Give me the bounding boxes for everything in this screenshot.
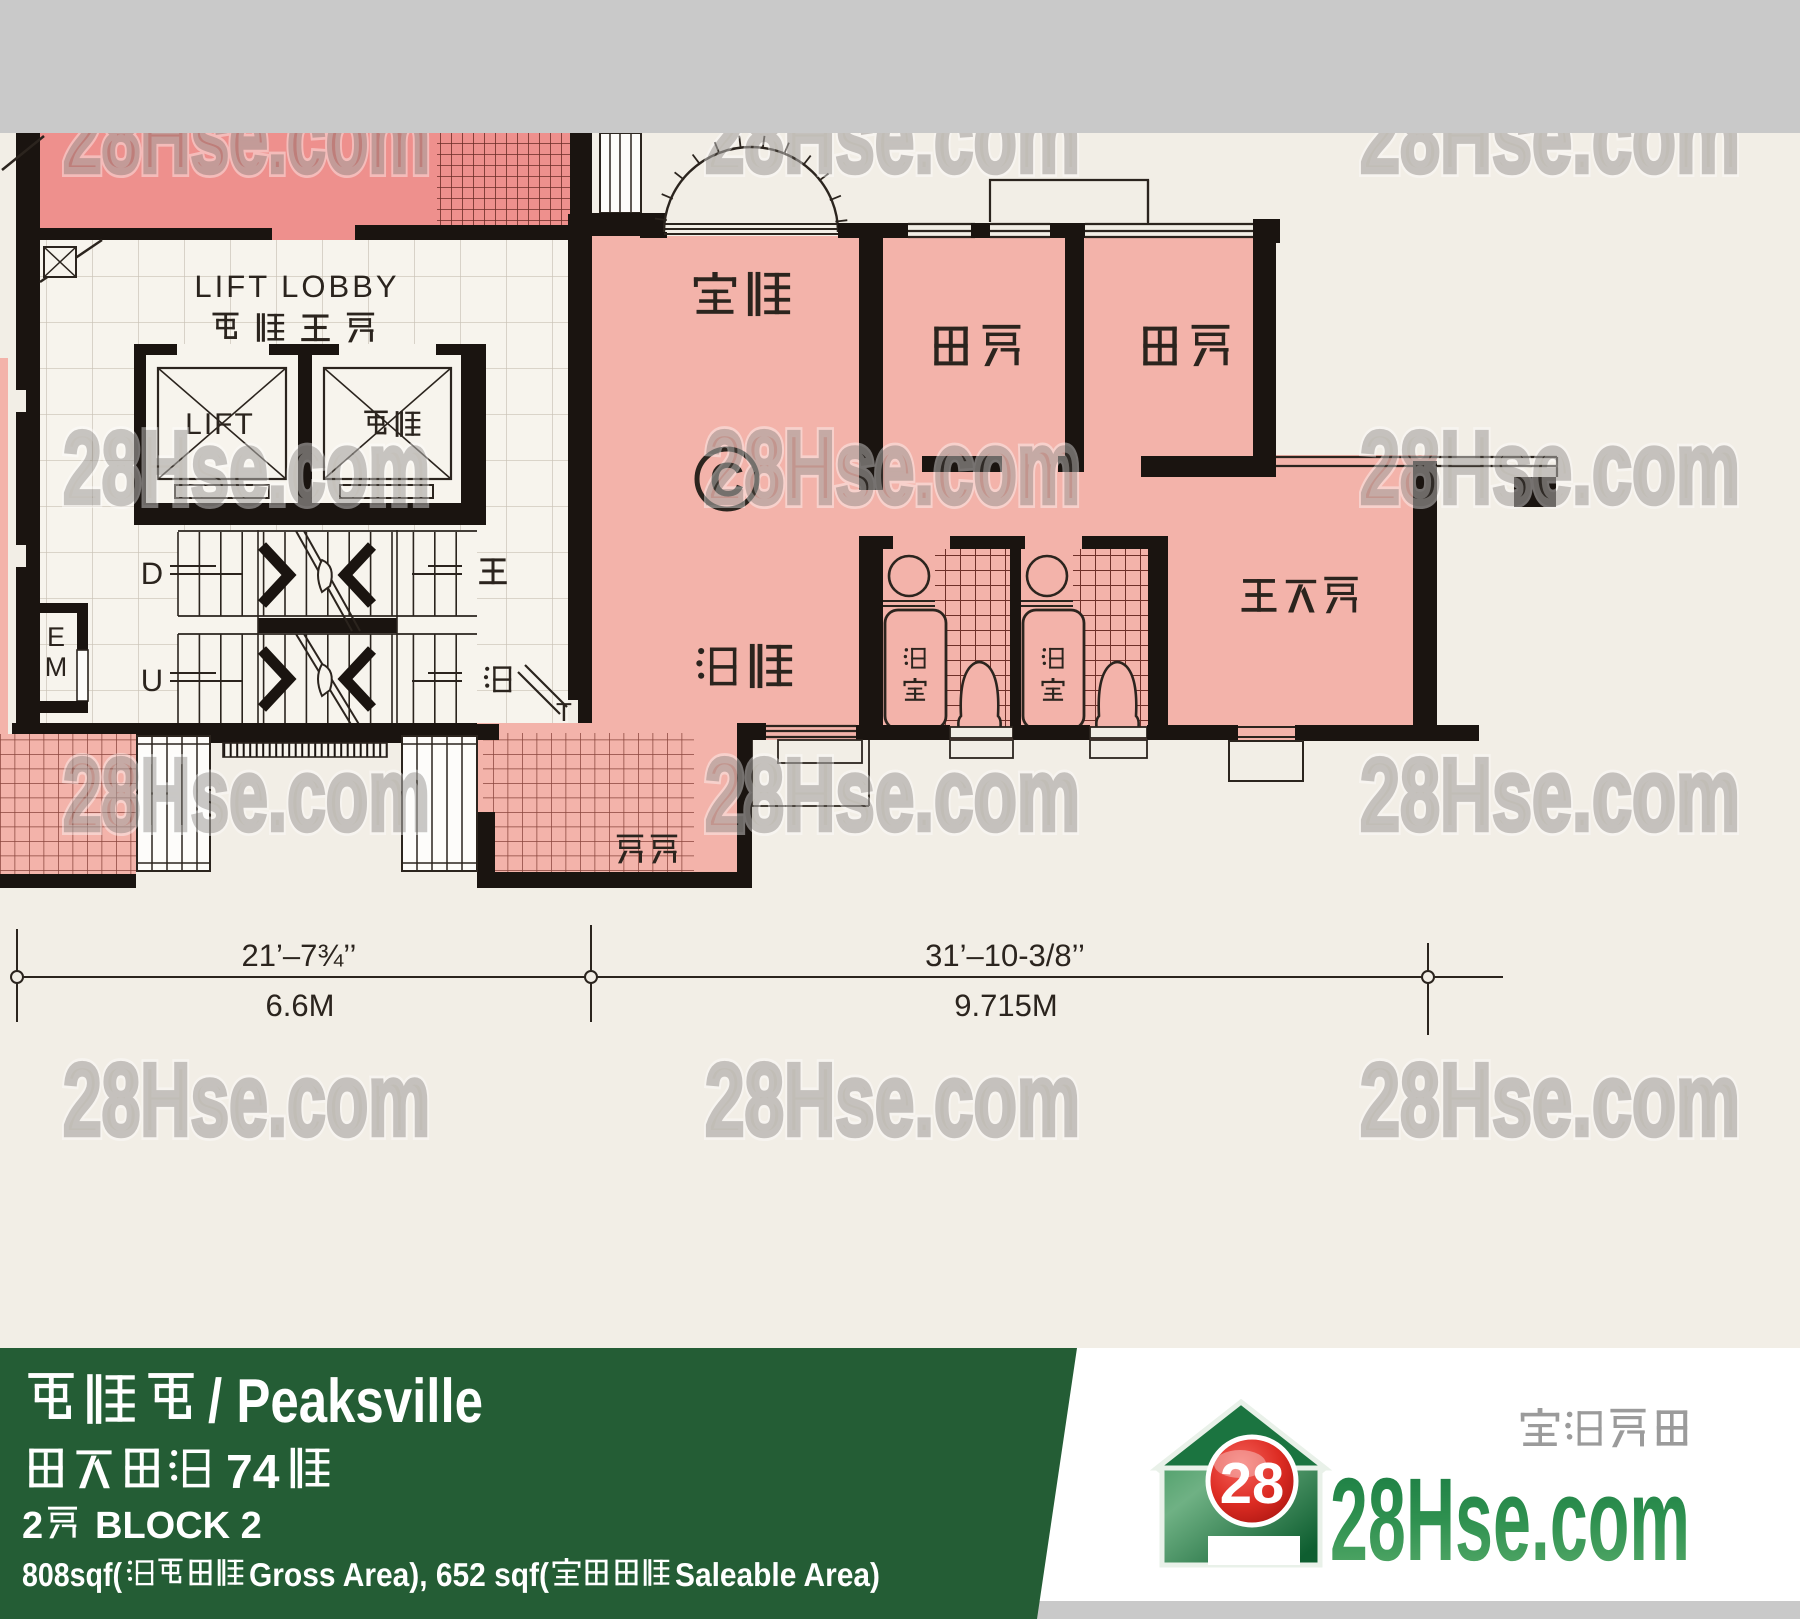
svg-text:E: E (47, 622, 65, 652)
svg-text:28Hse.com: 28Hse.com (705, 737, 1080, 852)
svg-text:28Hse.com: 28Hse.com (1330, 1454, 1690, 1586)
svg-text:28Hse.com: 28Hse.com (1360, 410, 1740, 525)
svg-text:28Hse.com: 28Hse.com (705, 410, 1080, 525)
svg-text:2: 2 (22, 1505, 43, 1547)
svg-text:28Hse.com: 28Hse.com (63, 737, 430, 852)
svg-text:21’–7¾’’: 21’–7¾’’ (242, 938, 357, 973)
svg-text:/ Peaksville: / Peaksville (208, 1367, 483, 1436)
svg-text:28Hse.com: 28Hse.com (1360, 1042, 1740, 1157)
svg-text:74: 74 (226, 1446, 280, 1499)
svg-text:M: M (45, 652, 68, 682)
svg-text:28Hse.com: 28Hse.com (705, 1042, 1080, 1157)
svg-text:9.715M: 9.715M (954, 988, 1057, 1023)
svg-text:28Hse.com: 28Hse.com (63, 410, 430, 525)
svg-text:28Hse.com: 28Hse.com (63, 1042, 430, 1157)
svg-text:T: T (556, 697, 572, 727)
svg-text:D: D (141, 556, 163, 591)
svg-text:6.6M: 6.6M (266, 988, 335, 1023)
svg-text:Gross Area), 652 sqf(: Gross Area), 652 sqf( (249, 1556, 549, 1593)
svg-text:808sqf(: 808sqf( (22, 1556, 122, 1593)
svg-text:Saleable Area): Saleable Area) (675, 1556, 880, 1593)
svg-text:BLOCK 2: BLOCK 2 (95, 1505, 262, 1547)
svg-text:28: 28 (1220, 1451, 1285, 1516)
svg-text:31’–10-3/8’’: 31’–10-3/8’’ (925, 938, 1085, 973)
svg-text:28Hse.com: 28Hse.com (1360, 737, 1740, 852)
svg-text:LIFT LOBBY: LIFT LOBBY (194, 269, 399, 304)
svg-text:U: U (141, 663, 163, 698)
